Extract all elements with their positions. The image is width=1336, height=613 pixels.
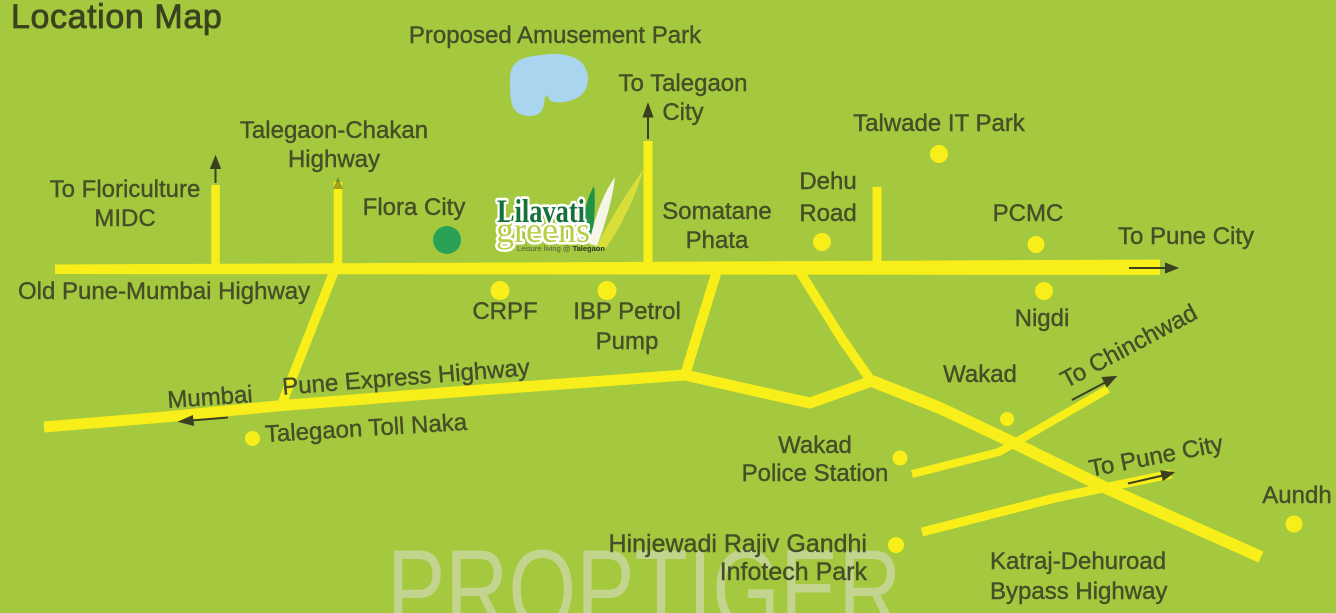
svg-text:Leisure living @ Talegaon: Leisure living @ Talegaon xyxy=(517,244,605,253)
